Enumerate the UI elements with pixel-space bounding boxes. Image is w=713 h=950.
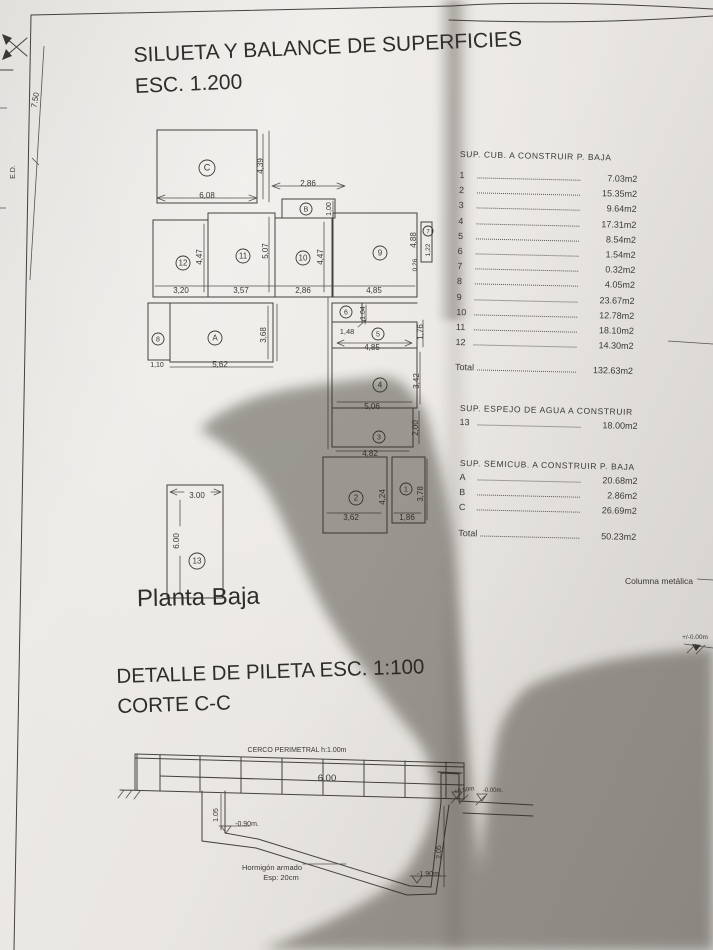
dimension-label: 3,68: [259, 327, 268, 343]
dimension-label: 1,86: [399, 513, 415, 522]
row-label: 2: [459, 185, 474, 195]
detail-title: DETALLE DE PILETA ESC. 1:100 CORTE C-C: [116, 652, 426, 722]
dimension-label: -1.90m.: [417, 871, 441, 878]
dimension-label: 7: [426, 230, 430, 236]
dotted-leader: [480, 534, 579, 538]
row-label: 7: [457, 261, 472, 271]
dimension-label: 3,42: [412, 373, 421, 389]
dimension-label: 4,88: [409, 232, 418, 248]
dimension-label: 2,86: [300, 179, 316, 188]
dimension-label: 8: [156, 337, 160, 344]
dimension-label: 3: [377, 435, 381, 442]
row-label: 4: [458, 216, 473, 226]
row-value: 15.35m2: [585, 188, 637, 199]
dotted-leader: [476, 222, 579, 226]
dimension-label: 2,86: [295, 286, 311, 295]
row-value: 20.68m2: [585, 475, 637, 486]
dimension-label: 1,00: [326, 202, 333, 216]
row-value: 4.05m2: [583, 279, 635, 290]
dimension-label: 1,76: [416, 324, 425, 340]
table-sup-espejo: SUP. ESPEJO DE AGUA A CONSTRUIR 1318.00m…: [459, 403, 638, 436]
dimension-label: 1.04: [360, 306, 367, 320]
floor-plan-lines: [148, 130, 432, 598]
dimension-label: 4,24: [378, 489, 387, 505]
annotation-labels: Columna metálica+/-0.00m: [625, 576, 708, 641]
dimension-label: 3.00: [189, 491, 205, 500]
row-label: 9: [457, 291, 472, 301]
row-label: 1: [459, 170, 474, 180]
row-value: 50.23m2: [584, 530, 636, 541]
photographed-drawing-sheet: C6,084,392,86B1,00121110973,203,572,864,…: [0, 0, 713, 950]
row-value: 23.67m2: [583, 294, 635, 305]
dimension-label: 6: [344, 310, 348, 317]
dimension-label: 1,48: [340, 327, 355, 336]
dimension-label: 4,39: [256, 158, 265, 174]
row-value: 14.30m2: [581, 340, 633, 351]
dimension-label: 4,82: [362, 449, 378, 458]
row-value: 12.78m2: [582, 310, 634, 321]
dimension-label: 11: [239, 252, 248, 261]
dimension-label: 12: [179, 259, 188, 268]
north-arrow-icon: [0, 34, 27, 70]
table-row: 1214.30m2: [455, 337, 633, 356]
row-value: 18.10m2: [582, 325, 634, 336]
dimension-label: 3,57: [233, 286, 249, 295]
dimension-label: 7.50: [30, 91, 42, 108]
dimension-label: 3,62: [343, 513, 359, 522]
row-value: 2.86m2: [585, 490, 637, 501]
row-label: Total: [458, 528, 477, 538]
row-label: 13: [459, 417, 474, 427]
table-row: C26.69m2: [459, 502, 637, 521]
dimension-label: +/-0.00m: [682, 634, 708, 641]
margin-dimension-lines: [0, 46, 44, 280]
dimension-label: 1: [404, 487, 408, 494]
row-label: Total: [455, 362, 474, 372]
dotted-leader: [477, 478, 580, 482]
row-label: 11: [456, 322, 471, 332]
dotted-leader: [477, 176, 580, 180]
row-label: 3: [459, 200, 474, 210]
dotted-leader: [477, 494, 580, 498]
row-value: 26.69m2: [585, 505, 637, 516]
dimension-label: 5,07: [261, 243, 270, 259]
dimension-label: 1,22: [425, 243, 432, 256]
dimension-label: 3,20: [173, 286, 189, 295]
dotted-leader: [476, 252, 579, 256]
dimension-label: 5,62: [212, 360, 228, 369]
dotted-leader: [475, 268, 578, 272]
row-label: C: [459, 502, 474, 512]
dimension-label: Esp: 20cm: [263, 873, 298, 882]
dimension-label: 6.00: [172, 533, 181, 549]
row-value: 17.31m2: [584, 218, 636, 229]
dimension-label: 5: [376, 332, 380, 339]
plan-dimension-labels: C6,084,392,86B1,00121110973,203,572,864,…: [10, 91, 433, 569]
dimension-label: 13: [193, 557, 202, 566]
dotted-leader: [477, 509, 580, 513]
row-label: 6: [458, 246, 473, 256]
row-value: 1.54m2: [584, 249, 636, 260]
row-label: B: [459, 487, 474, 497]
dimension-label: CERCO PERIMETRAL h:1.00m: [248, 747, 347, 754]
dimension-label: B: [304, 207, 309, 214]
dimension-label: 10: [299, 254, 308, 263]
dimension-label: 3,78: [416, 486, 425, 502]
dotted-leader: [477, 192, 580, 196]
dotted-leader: [477, 423, 580, 427]
dimension-label: -0.90m.: [235, 821, 259, 828]
dimension-label: -0.00m.: [483, 788, 504, 794]
dimension-label: 2,00: [411, 420, 420, 436]
dotted-leader: [477, 207, 580, 211]
row-label: 8: [457, 276, 472, 286]
row-value: 132.63m2: [581, 365, 633, 376]
dimension-label: 5,06: [364, 402, 380, 411]
dimension-label: E.D.: [10, 165, 17, 179]
row-label: 10: [456, 307, 471, 317]
dimension-label: 4,47: [195, 249, 204, 265]
dimension-label: C: [204, 163, 211, 173]
row-label: 12: [456, 337, 471, 347]
row-value: 7.03m2: [585, 173, 637, 184]
row-value: 0.32m2: [583, 264, 635, 275]
dimension-label: 4,85: [366, 286, 382, 295]
dotted-leader: [474, 313, 577, 317]
row-value: 8.54m2: [584, 234, 636, 245]
plan-caption: Planta Baja: [137, 583, 260, 614]
dimension-label: 4: [378, 381, 383, 390]
row-label: 5: [458, 231, 473, 241]
dimension-label: Hormigón armado: [242, 863, 302, 872]
dotted-leader: [475, 298, 578, 302]
dimension-label: 1.05: [213, 808, 220, 822]
row-value: 9.64m2: [585, 203, 637, 214]
table-sup-cub: SUP. CUB. A CONSTRUIR P. BAJA 17.03m2215…: [455, 149, 638, 381]
dimension-label: 9: [378, 249, 383, 258]
dimension-label: 4,47: [316, 249, 325, 265]
dotted-leader: [475, 283, 578, 287]
dotted-leader: [474, 343, 577, 347]
dimension-label: Columna metálica: [625, 576, 693, 586]
dimension-label: 2: [354, 494, 359, 503]
dimension-label: 6.00: [318, 773, 337, 784]
table-rows: 17.03m2215.35m239.64m2417.31m258.54m261.…: [455, 170, 638, 381]
level-marker-right: [668, 341, 713, 654]
dimension-label: 4,85: [364, 343, 380, 352]
table-rows: A20.68m2B2.86m2C26.69m2Total50.23m2: [458, 472, 638, 547]
dimension-label: 2.05: [436, 845, 443, 859]
dimension-label: 1,10: [150, 362, 164, 369]
dimension-label: 0,26: [412, 258, 419, 271]
row-value: 18.00m2: [585, 420, 637, 431]
dimension-label: A: [212, 334, 218, 343]
dimension-label: 6,08: [199, 191, 215, 200]
dotted-leader: [474, 328, 577, 332]
dotted-leader: [477, 369, 576, 373]
dotted-leader: [476, 237, 579, 241]
table-sup-semicub: SUP. SEMICUB. A CONSTRUIR P. BAJA A20.68…: [458, 458, 638, 547]
row-label: A: [459, 472, 474, 482]
